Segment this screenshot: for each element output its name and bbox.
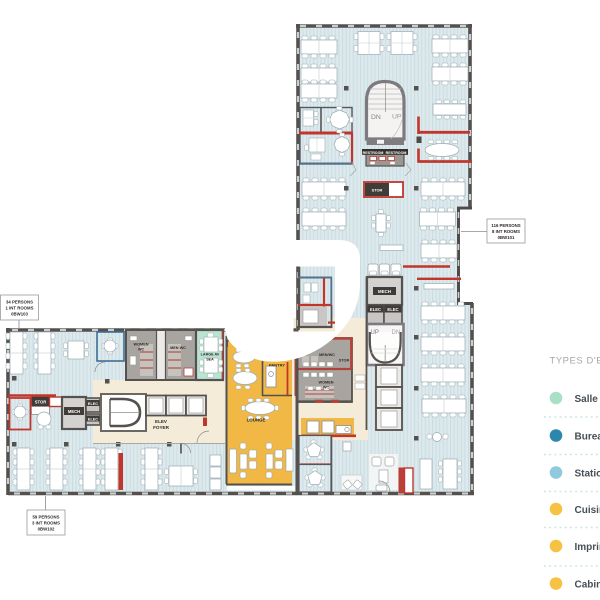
svg-text:MEN WC: MEN WC (170, 346, 186, 350)
svg-text:SEA: SEA (206, 358, 214, 362)
svg-text:WOMEN: WOMEN (319, 381, 334, 385)
svg-text:Salle de conf: Salle de conf (575, 394, 600, 405)
svg-text:Cabines: Cabines (575, 579, 600, 590)
svg-text:WOMEN: WOMEN (134, 343, 149, 347)
svg-text:ELEV: ELEV (155, 419, 168, 424)
svg-text:UP: UP (392, 114, 402, 121)
svg-text:STOR: STOR (372, 188, 383, 193)
svg-text:ELEC: ELEC (88, 402, 98, 406)
svg-text:RESTROOM: RESTROOM (386, 151, 407, 155)
svg-text:MECH: MECH (68, 409, 80, 414)
svg-text:WC: WC (138, 348, 145, 352)
svg-text:ELEC: ELEC (88, 418, 98, 422)
svg-text:116 PERSONS: 116 PERSONS (491, 223, 520, 228)
svg-text:ELEC: ELEC (387, 307, 398, 312)
svg-text:RESTROOM: RESTROOM (363, 151, 384, 155)
svg-text:Stations de t: Stations de t (575, 468, 600, 479)
svg-text:0BW102: 0BW102 (38, 527, 55, 532)
svg-text:3 INT ROOMS: 3 INT ROOMS (32, 521, 60, 526)
svg-text:STOR: STOR (339, 359, 350, 363)
svg-text:34 PERSONS: 34 PERSONS (6, 300, 33, 305)
svg-text:DN: DN (371, 114, 381, 121)
svg-text:Cuisines: Cuisines (575, 505, 600, 516)
svg-text:FOYER: FOYER (153, 425, 170, 430)
svg-text:MEN/WC: MEN/WC (319, 353, 335, 357)
svg-text:LARGE AV: LARGE AV (201, 353, 220, 357)
svg-text:PANTRY: PANTRY (269, 363, 285, 368)
svg-text:ELEC: ELEC (370, 307, 381, 312)
svg-text:0BW103: 0BW103 (11, 312, 28, 317)
svg-text:Imprimante: Imprimante (575, 542, 600, 553)
svg-text:8 INT ROOMS: 8 INT ROOMS (492, 229, 520, 234)
svg-text:UP: UP (371, 330, 379, 336)
svg-text:LOUNGE: LOUNGE (247, 418, 266, 423)
svg-text:59 PERSONS: 59 PERSONS (33, 515, 60, 520)
svg-text:DN: DN (392, 330, 401, 336)
svg-text:1 INT ROOMS: 1 INT ROOMS (6, 306, 34, 311)
svg-text:STOR: STOR (35, 400, 47, 405)
svg-text:MECH: MECH (378, 289, 391, 294)
svg-text:Bureaux: Bureaux (575, 431, 600, 442)
svg-text:WC: WC (323, 386, 330, 390)
svg-text:0BW101: 0BW101 (498, 235, 515, 240)
svg-text:TYPES D'ESPACE: TYPES D'ESPACE (550, 355, 600, 366)
